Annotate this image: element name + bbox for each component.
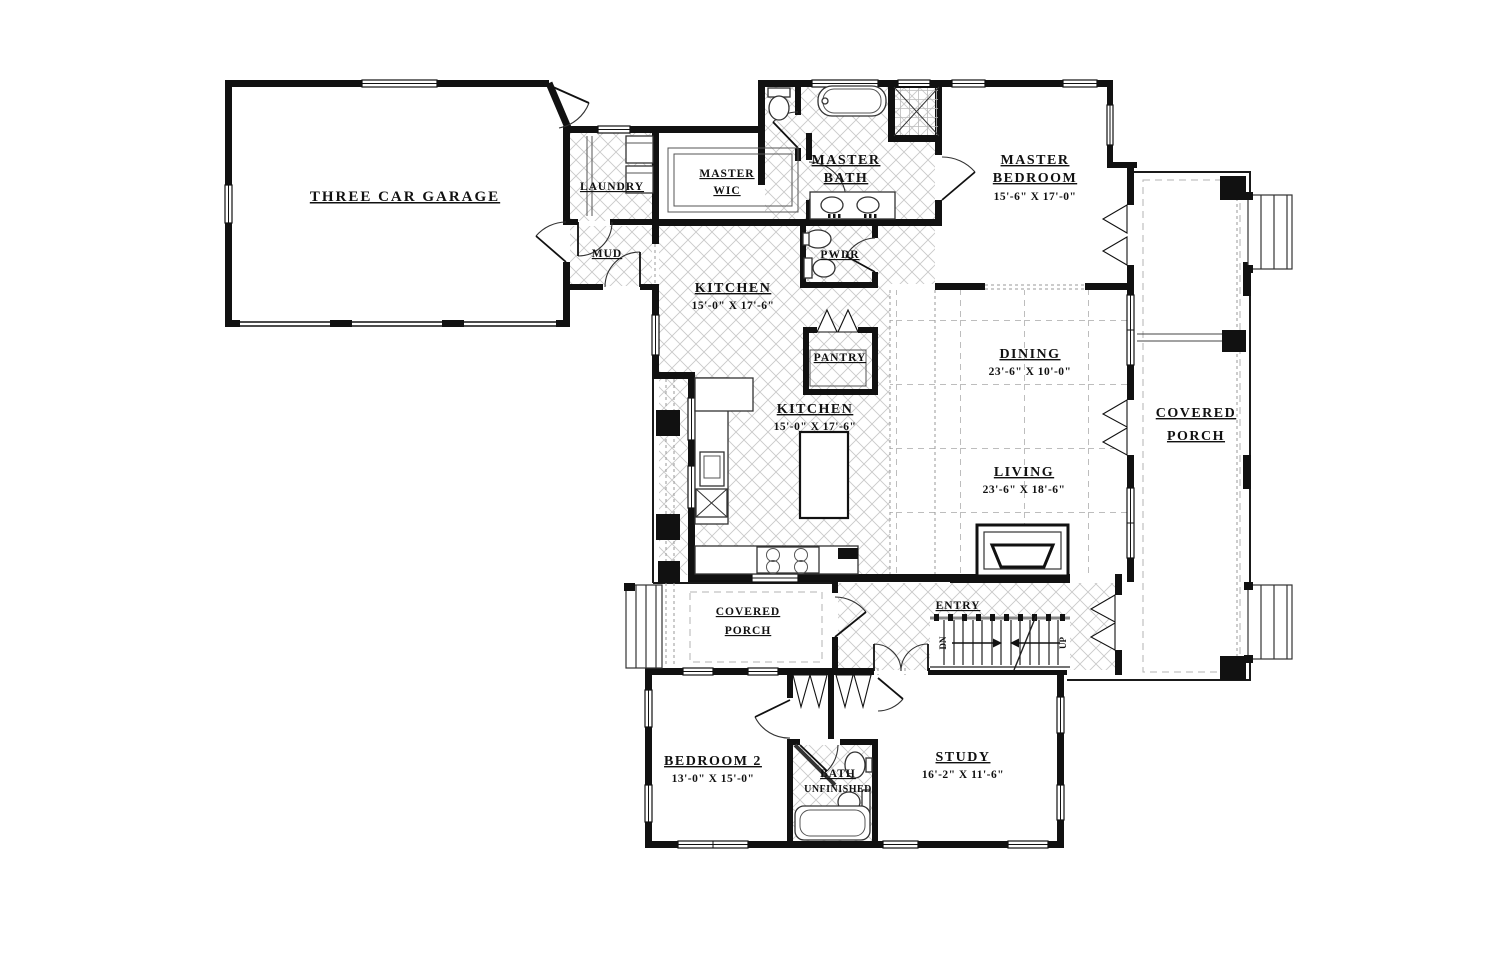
garage-doors <box>240 322 556 326</box>
pwdr-label: PWDR <box>820 249 859 261</box>
dining-dims: 23'-6" X 10'-0" <box>989 366 1072 378</box>
covered-porch-right-label-2: PORCH <box>1167 429 1225 444</box>
garage-label: THREE CAR GARAGE <box>310 189 500 205</box>
bath2-label: BATH <box>820 768 856 780</box>
floor-plan-drawing: DN UP THREE CAR GARAGE LAUNDRY MUD MASTE… <box>0 0 1500 971</box>
master-bath-label-2: BATH <box>824 171 869 186</box>
study-dims: 16'-2" X 11'-6" <box>922 769 1004 781</box>
stairs[interactable]: DN UP <box>930 614 1070 670</box>
kitchen-label: KITCHEN <box>777 402 854 417</box>
pantry-label: PANTRY <box>814 352 867 364</box>
kitchen-upper-dims: 15'-0" X 17'-6" <box>692 300 775 312</box>
dining-label: DINING <box>999 347 1060 362</box>
bath2-sub-label: UNFINISHED <box>804 784 872 795</box>
study-label: STUDY <box>936 750 991 765</box>
master-wic-label-2: WIC <box>713 185 740 197</box>
kitchen-dims: 15'-0" X 17'-6" <box>774 421 857 433</box>
master-bath-label-1: MASTER <box>812 153 881 168</box>
living-label: LIVING <box>994 465 1054 480</box>
laundry-label: LAUNDRY <box>580 181 644 193</box>
mud-label: MUD <box>592 248 622 260</box>
master-bedroom-dims: 15'-6" X 17'-0" <box>994 191 1077 203</box>
bedroom2-label: BEDROOM 2 <box>664 754 762 769</box>
covered-porch-left-label-2: PORCH <box>725 625 772 637</box>
stairs-down-label: DN <box>938 636 948 649</box>
entry-label: ENTRY <box>936 600 981 612</box>
covered-porch-right-label-1: COVERED <box>1156 406 1237 421</box>
covered-porch-left-label-1: COVERED <box>716 606 781 618</box>
kitchen-upper-label: KITCHEN <box>695 281 772 296</box>
master-bedroom-label-2: BEDROOM <box>993 171 1077 186</box>
living-dims: 23'-6" X 18'-6" <box>983 484 1066 496</box>
master-wic-label-1: MASTER <box>699 168 754 180</box>
stairs-up-label: UP <box>1058 637 1068 649</box>
master-bedroom-label-1: MASTER <box>1001 153 1070 168</box>
bedroom2-dims: 13'-0" X 15'-0" <box>672 773 755 785</box>
floor-plan-canvas: DN UP THREE CAR GARAGE LAUNDRY MUD MASTE… <box>0 0 1500 971</box>
